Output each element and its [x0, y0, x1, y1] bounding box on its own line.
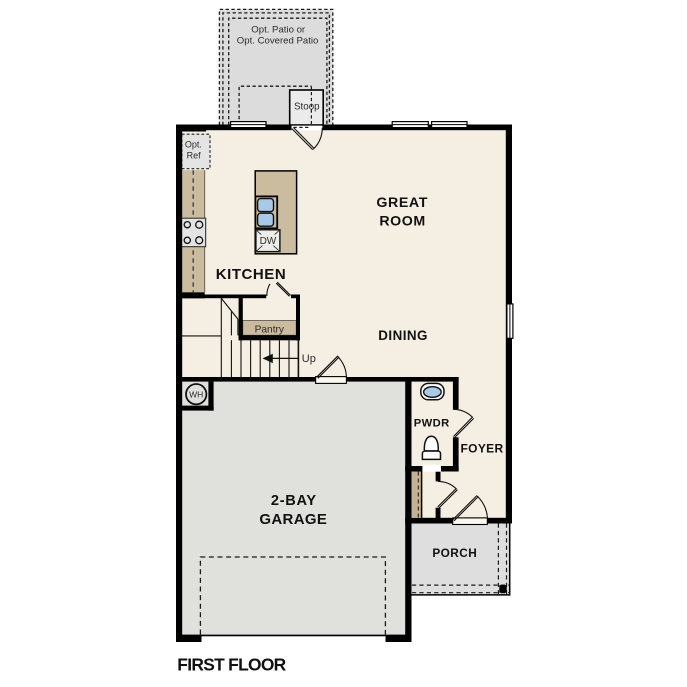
svg-text:Opt. Patio or: Opt. Patio or: [251, 25, 306, 36]
svg-text:WH: WH: [189, 389, 203, 399]
svg-text:FIRST FLOOR: FIRST FLOOR: [177, 654, 286, 674]
svg-text:2-BAY: 2-BAY: [271, 493, 317, 509]
svg-text:PORCH: PORCH: [432, 546, 477, 560]
svg-text:ROOM: ROOM: [379, 213, 426, 229]
svg-text:Ref: Ref: [187, 150, 202, 160]
svg-text:Pantry: Pantry: [255, 324, 285, 335]
svg-text:PWDR: PWDR: [414, 418, 450, 430]
svg-text:DINING: DINING: [378, 328, 428, 343]
svg-text:DW: DW: [260, 236, 277, 247]
svg-text:Up: Up: [302, 353, 316, 365]
svg-text:GREAT: GREAT: [376, 195, 428, 211]
svg-text:Opt.: Opt.: [185, 139, 202, 149]
svg-text:Opt. Covered Patio: Opt. Covered Patio: [237, 36, 319, 47]
svg-text:KITCHEN: KITCHEN: [216, 266, 287, 283]
svg-text:FOYER: FOYER: [460, 441, 503, 455]
svg-text:GARAGE: GARAGE: [259, 511, 327, 528]
svg-text:Stoop: Stoop: [294, 101, 320, 112]
